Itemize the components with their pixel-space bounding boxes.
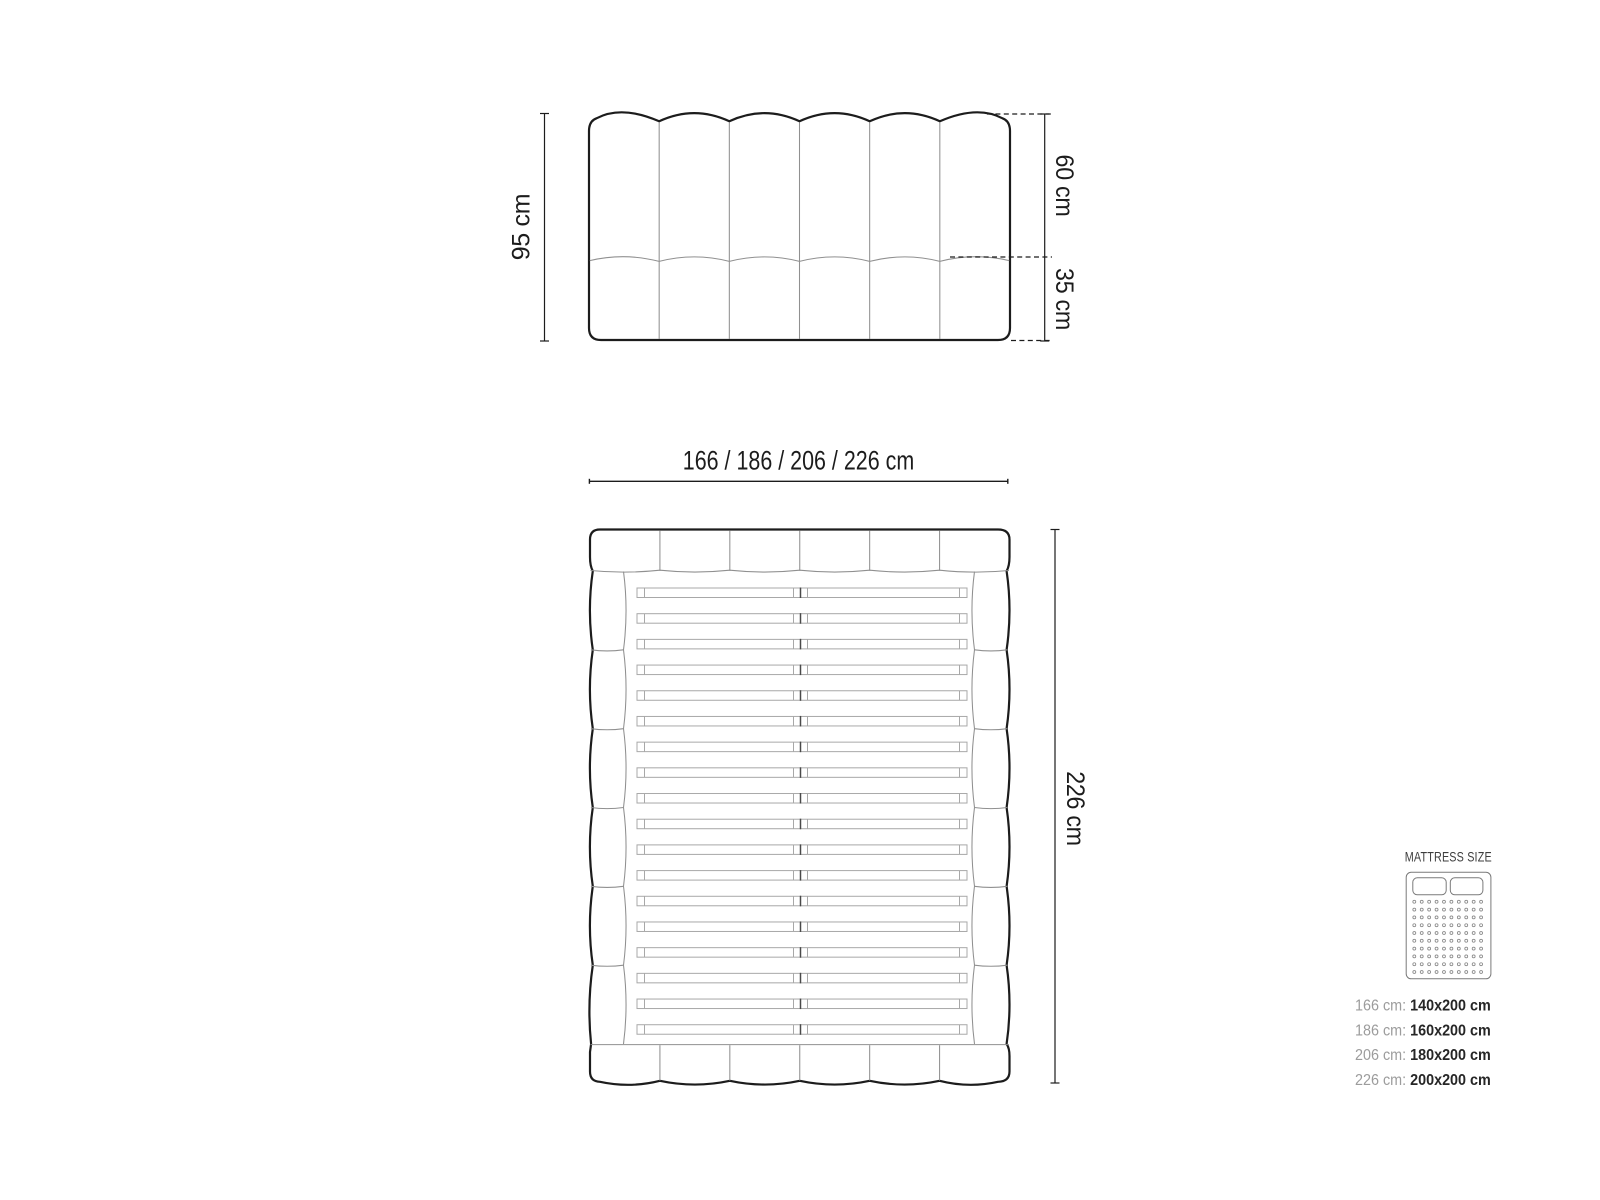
svg-text:166 cm: 140x200 cm: 166 cm: 140x200 cm (1355, 997, 1491, 1015)
svg-text:206 cm: 180x200 cm: 206 cm: 180x200 cm (1355, 1047, 1491, 1065)
svg-text:226 cm: 226 cm (1061, 771, 1089, 846)
svg-text:60 cm: 60 cm (1050, 155, 1078, 217)
svg-text:95 cm: 95 cm (508, 194, 536, 261)
svg-text:166 / 186 / 206 / 226 cm: 166 / 186 / 206 / 226 cm (683, 446, 914, 476)
svg-text:226 cm: 200x200 cm: 226 cm: 200x200 cm (1355, 1071, 1491, 1089)
svg-text:35 cm: 35 cm (1050, 268, 1078, 330)
svg-text:186 cm: 160x200 cm: 186 cm: 160x200 cm (1355, 1022, 1491, 1040)
svg-text:MATTRESS SIZE: MATTRESS SIZE (1405, 849, 1492, 864)
